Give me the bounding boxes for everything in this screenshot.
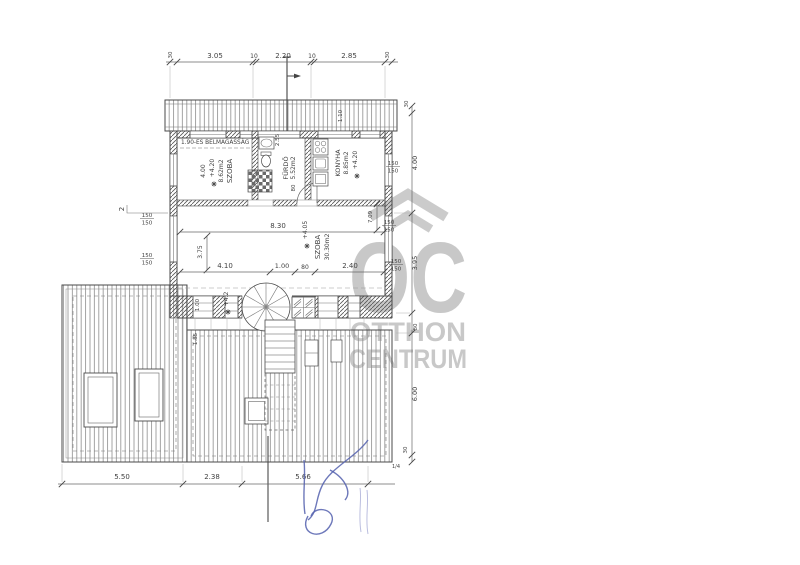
level-marker-icon: [304, 243, 309, 248]
window-size-mark: [140, 213, 154, 227]
window-size-mark: [140, 253, 154, 267]
dim-segment: 4.10: [217, 262, 233, 270]
room-level-label: +4.20: [352, 151, 359, 170]
headroom-label: 1.90-ES BELMAGASSÁG: [181, 139, 250, 146]
dim-top: 30: [168, 51, 174, 58]
door-opening: [297, 200, 317, 206]
level-marker-icon: [354, 173, 359, 178]
headroom-note: 1.90-ES BELMAGASSÁG: [180, 139, 252, 148]
dim-segment: 2.40: [342, 262, 358, 270]
dim-roof-edge: 1.10: [338, 109, 344, 122]
level-marker-icon: [211, 181, 216, 186]
roof-window: [305, 340, 318, 366]
window-size-mark: [386, 161, 400, 175]
dim-right: 4.00: [411, 156, 419, 170]
dim-bottom: 2.38: [204, 473, 220, 481]
dim-top: 2.85: [341, 52, 357, 60]
roof-window: [135, 369, 163, 421]
window: [170, 216, 177, 262]
section-number-label: 2: [118, 207, 126, 211]
kitchen-sink: [313, 157, 328, 170]
dim-stair-depth: 1.85: [193, 332, 199, 345]
roof-window: [84, 373, 117, 427]
dim-bath-door: 80: [291, 184, 297, 191]
room-name-label: KONYHA: [334, 149, 342, 177]
dim-top: 3.05: [207, 52, 223, 60]
chimney: [292, 297, 315, 318]
dim-top: 10: [308, 53, 316, 60]
room-level-label: +4.20: [209, 159, 216, 178]
floor-plan-drawing: 150 150 OC OTTHON CENTRUM: [0, 0, 800, 565]
window: [240, 131, 252, 138]
window-size-mark: [389, 259, 403, 273]
room-name-label: FÜRDŐ: [281, 156, 290, 179]
dim-right: 6.00: [411, 387, 419, 401]
room-name-label: SZOBA: [314, 235, 322, 260]
dim-right: 3.95: [411, 256, 419, 270]
scale-fraction-label: 1/4: [392, 464, 400, 470]
dim-top: 10: [250, 53, 258, 60]
upper-roof-band: 1.10: [165, 100, 397, 131]
dim-bath-width: 2.55: [275, 133, 281, 146]
window: [318, 131, 352, 138]
top-dimension-line: 30 3.05 10 2.20 10 2.85 30: [166, 51, 398, 98]
shower-tray: [248, 170, 272, 192]
scanned-floor-plan-page: 150 150 OC OTTHON CENTRUM: [0, 0, 800, 565]
room-name-label: SZOBA: [226, 159, 234, 184]
dim-top: 2.20: [275, 52, 291, 60]
room-level-label: +4.05: [302, 221, 309, 240]
window: [170, 154, 177, 186]
dim-right: 80: [413, 323, 419, 330]
dim-bottom: 5.66: [295, 473, 311, 481]
dim-room-width: 8.30: [270, 222, 286, 230]
dim-stair-width: 1.00: [195, 298, 201, 311]
window: [360, 131, 380, 138]
skylight: [245, 398, 268, 424]
dim-right: 30: [404, 100, 410, 107]
dim-right: 30: [403, 446, 409, 453]
dim-bottom: 5.50: [114, 473, 130, 481]
section-marker-left: 2: [118, 205, 168, 213]
roof-window: [331, 340, 342, 362]
room-level-label: +4.2: [223, 292, 230, 307]
room-area-label: 5.52m2: [290, 156, 297, 179]
toilet: [261, 152, 271, 167]
window: [348, 296, 360, 318]
room-konyha: KONYHA 8.85m2 +4.20: [313, 139, 360, 186]
stove: [313, 139, 328, 155]
room-height-label: 4.00: [200, 164, 207, 178]
section-arrow-icon: [294, 74, 301, 79]
room-area-label: 30.30m2: [324, 233, 331, 260]
dim-top: 30: [385, 51, 391, 58]
window-size-mark: [382, 220, 396, 234]
room-szoba1: 4.00 +4.20 8.62m2 SZOBA: [200, 159, 234, 187]
dim-room-depth: 3.75: [197, 245, 204, 259]
washbasin: [259, 137, 274, 149]
kitchen-cabinet: [313, 172, 328, 186]
partition-wall: [305, 138, 311, 200]
door-opening: [248, 200, 273, 206]
room-area-label: 8.62m2: [218, 159, 225, 182]
level-marker-icon: [225, 309, 230, 314]
dim-room-side: 7.09: [368, 210, 374, 223]
left-roof-plane: [62, 285, 187, 462]
room-area-label: 8.85m2: [343, 151, 350, 174]
window: [318, 296, 338, 318]
dim-segment: 80: [301, 264, 309, 271]
dim-segment: 1.00: [275, 262, 289, 270]
window: [190, 131, 226, 138]
